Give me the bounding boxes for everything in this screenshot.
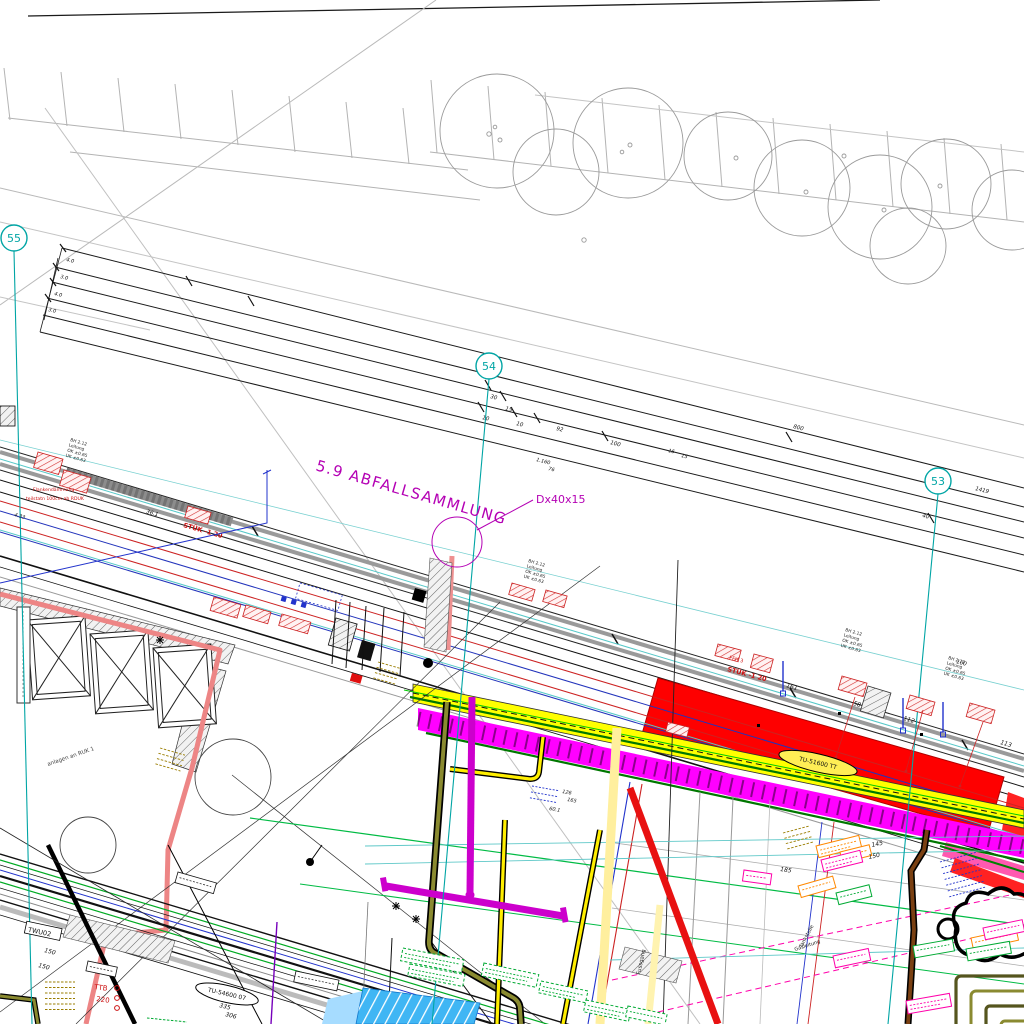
plan-drawing: 55 54 53 5.9 ABFALLSAMMLUNG Dx40x15 Flan…	[0, 0, 1024, 1024]
dim: 100	[610, 440, 622, 448]
station-55: 55	[7, 232, 21, 245]
duct-label: Dx40x15	[536, 493, 585, 506]
note-flank-1: Flankendämmung	[33, 487, 74, 493]
note-flank-2: teilstatn 100cm ab RDUK	[26, 496, 85, 502]
magenta-pipe	[470, 697, 472, 893]
dim: 161	[785, 682, 798, 692]
dim: 3.0	[48, 307, 57, 315]
dim: 10	[516, 421, 525, 429]
dim: 30	[490, 394, 499, 402]
note-ffh: FFH 3	[728, 655, 743, 664]
dim: 3.0	[60, 274, 69, 282]
station-53: 53	[931, 475, 945, 488]
survey-ticks	[45, 244, 934, 523]
dim: 4.0	[54, 291, 63, 299]
pool	[322, 988, 480, 1024]
dim: 15	[681, 453, 689, 460]
area-title: 5.9 ABFALLSAMMLUNG	[314, 457, 509, 529]
dim: 150	[44, 947, 57, 957]
dim: 40	[922, 513, 931, 521]
dim: 165	[567, 797, 577, 805]
skylight-box	[27, 616, 90, 700]
dim: 150	[38, 962, 51, 972]
station-54: 54	[482, 360, 496, 373]
dim: 145	[871, 840, 884, 849]
dim: 10	[482, 415, 491, 423]
dim: 306	[225, 1011, 238, 1021]
skylight-box	[90, 630, 153, 714]
dim: 60.1	[549, 806, 561, 814]
dim: 15	[668, 448, 676, 455]
dim: 800	[793, 424, 805, 432]
dim: 185	[780, 866, 792, 875]
dim: 1419	[975, 486, 991, 495]
tree-circles	[440, 74, 1024, 284]
leitung-stack: BH 2.12 Leitung OK ±0.65 UK ±0.63	[65, 437, 91, 464]
dim: 150	[868, 852, 881, 861]
cad-site-plan: 55 54 53 5.9 ABFALLSAMMLUNG Dx40x15 Flan…	[0, 0, 1024, 1024]
thick-red-line	[630, 788, 718, 1024]
leitung-stack: BH 2.12 Leitung OK ±0.65 UK ±0.63	[523, 558, 549, 585]
note-ttb-num: 220	[96, 995, 110, 1005]
dim: 4.0	[66, 257, 75, 265]
dim: 4.33	[13, 512, 25, 521]
dim: 126	[562, 789, 572, 797]
dim: 92	[556, 426, 565, 434]
anlagen-label: anlagen an RUK 1	[47, 746, 95, 768]
dim: 76	[548, 466, 556, 473]
dim: 335	[219, 1002, 232, 1012]
